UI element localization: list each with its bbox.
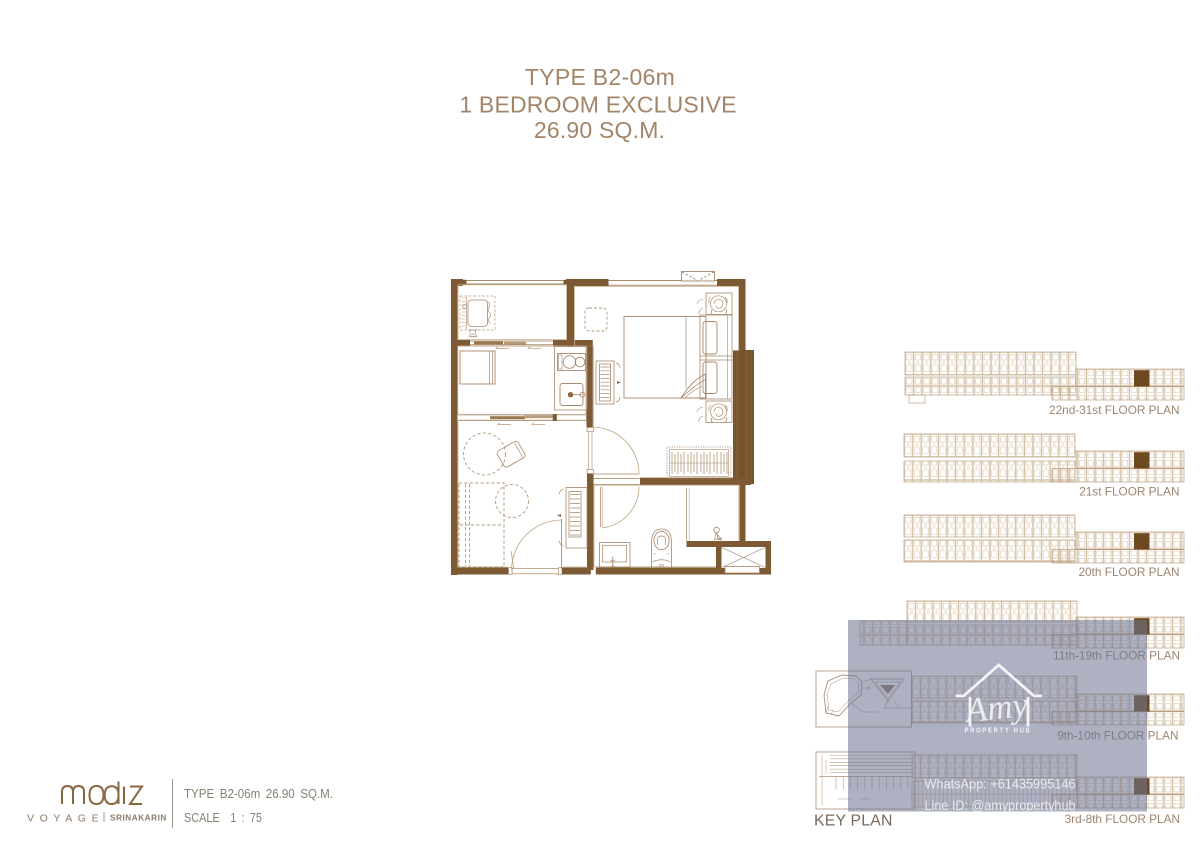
svg-text:Amy: Amy: [962, 685, 1030, 731]
svg-text:3rd-8th FLOOR PLAN: 3rd-8th FLOOR PLAN: [1065, 812, 1180, 826]
svg-text:22nd-31st FLOOR PLAN: 22nd-31st FLOOR PLAN: [1049, 403, 1179, 417]
svg-text:KEY PLAN: KEY PLAN: [814, 813, 893, 830]
svg-text:20th FLOOR PLAN: 20th FLOOR PLAN: [1079, 565, 1180, 579]
svg-text:26.90 SQ.M.: 26.90 SQ.M.: [534, 117, 665, 143]
svg-text:SRINAKARIN: SRINAKARIN: [110, 814, 167, 823]
svg-text:1 BEDROOM EXCLUSIVE: 1 BEDROOM EXCLUSIVE: [459, 92, 736, 118]
svg-text:Line ID: @amypropertyhub: Line ID: @amypropertyhub: [925, 798, 1076, 813]
svg-text:SCALE 1 : 75: SCALE 1 : 75: [184, 811, 262, 825]
svg-text:21st FLOOR PLAN: 21st FLOOR PLAN: [1079, 485, 1179, 499]
svg-text:PROPERTY HUB: PROPERTY HUB: [965, 726, 1032, 735]
svg-text:TYPE B2-06m: TYPE B2-06m: [525, 64, 675, 90]
svg-text:VOYAGE: VOYAGE: [27, 813, 104, 825]
svg-text:TYPE B2-06m 26.90 SQ.M.: TYPE B2-06m 26.90 SQ.M.: [184, 787, 333, 801]
svg-text:WhatsApp: +61435995146: WhatsApp: +61435995146: [925, 777, 1076, 792]
